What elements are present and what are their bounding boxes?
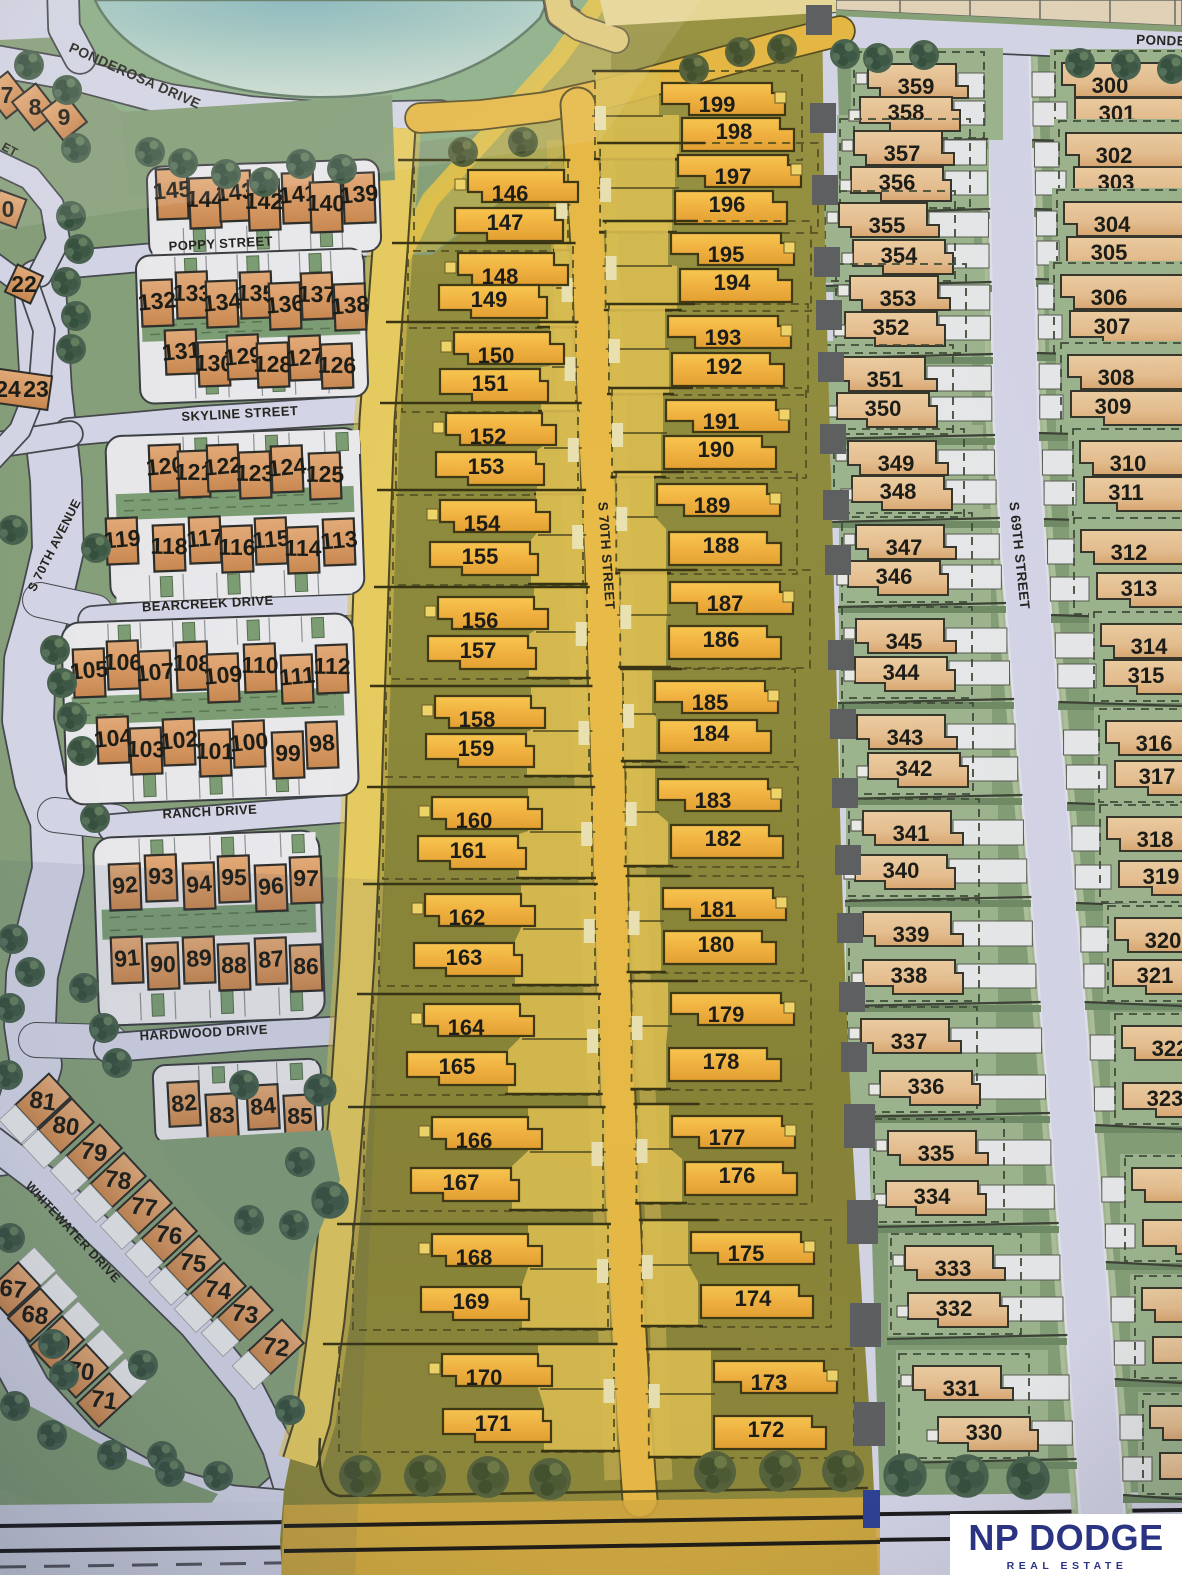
svg-text:NP DODGE: NP DODGE <box>968 1517 1163 1558</box>
svg-text:REAL ESTATE: REAL ESTATE <box>1007 1560 1128 1572</box>
